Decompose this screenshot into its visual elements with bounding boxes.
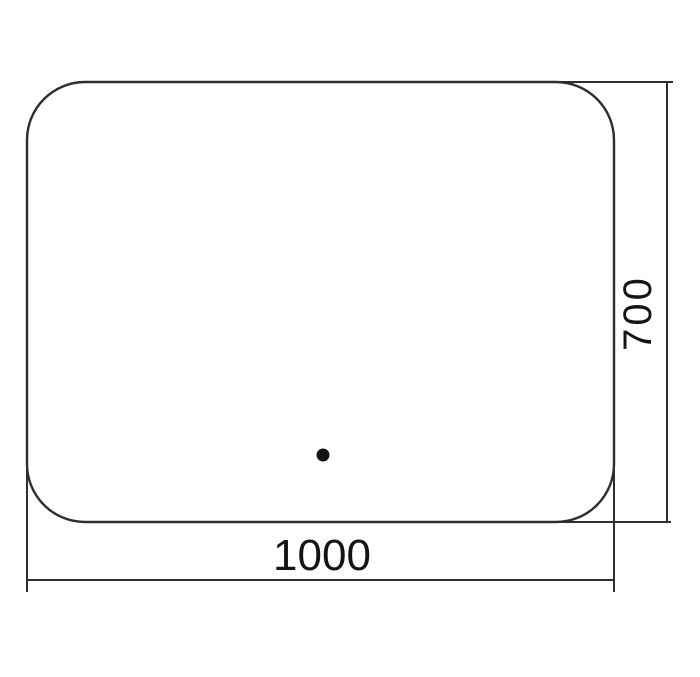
height-dimension-label: 700	[618, 233, 658, 393]
touch-sensor-dot	[317, 449, 330, 462]
technical-drawing: 1000 700	[0, 0, 700, 677]
width-dimension-label: 1000	[222, 534, 422, 578]
